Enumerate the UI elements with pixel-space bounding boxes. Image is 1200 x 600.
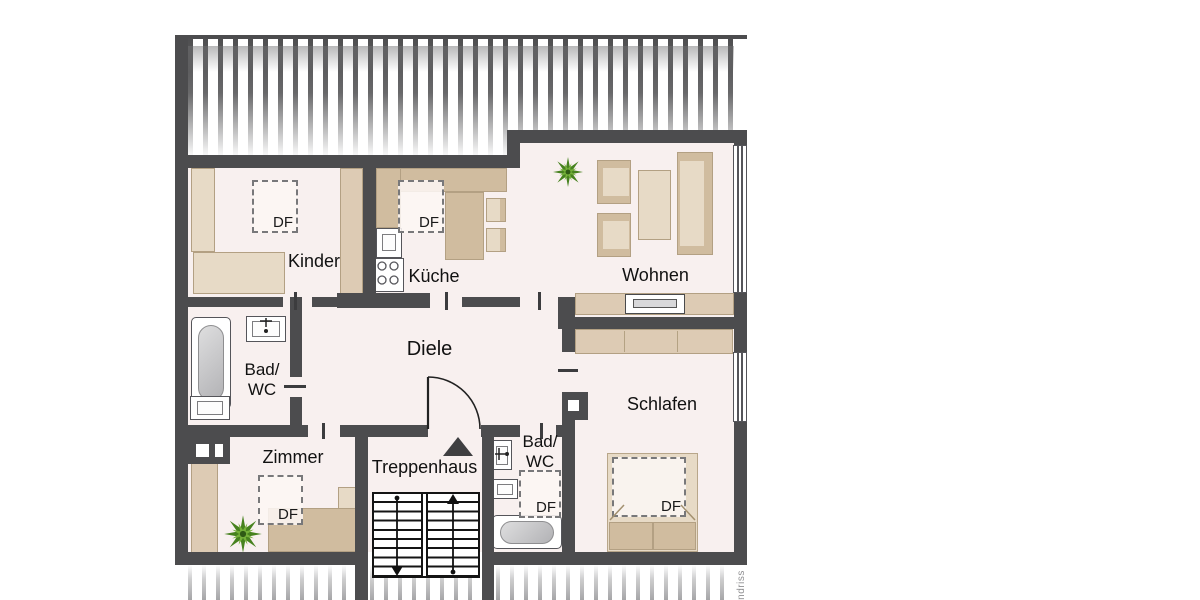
stair-divider	[421, 494, 428, 576]
kitchen-table	[445, 192, 484, 260]
wall	[562, 297, 575, 352]
room-label-bad2-line2: WC	[512, 452, 568, 472]
window-pane-line	[737, 146, 739, 292]
tv	[625, 294, 685, 314]
room-label-kueche: Küche	[391, 266, 477, 287]
wall	[363, 168, 376, 297]
wall	[462, 297, 520, 307]
chimney-block	[562, 392, 588, 420]
window-pane-line	[741, 146, 743, 292]
skylight-kueche: DF	[398, 180, 444, 233]
door-tick	[445, 292, 448, 310]
toilet	[190, 396, 230, 420]
sofa-seat	[680, 161, 704, 246]
bathtub-basin	[198, 325, 224, 401]
washbasin	[492, 440, 512, 470]
room-label-zimmer: Zimmer	[258, 447, 328, 468]
room-label-treppenhaus: Treppenhaus	[362, 457, 487, 478]
toilet-seat	[497, 484, 513, 495]
skylight-zimmer: DF	[258, 475, 303, 525]
stair-run-right	[428, 494, 478, 576]
sofa	[677, 152, 713, 255]
room-label-bad1-line2: WC	[230, 380, 294, 400]
window-pane-line	[741, 353, 743, 421]
window-wohnen	[733, 145, 747, 293]
room-label-bad1-line1: Bad/	[230, 360, 294, 380]
schlafen-wardrobe	[575, 329, 733, 354]
door-tick	[538, 292, 541, 310]
chimney-flue	[196, 444, 209, 457]
washbasin-bowl	[496, 446, 508, 465]
coffee-table	[638, 170, 671, 240]
wall	[507, 130, 747, 143]
kinder-bed-side	[191, 168, 215, 252]
stair-run-left	[374, 494, 421, 576]
chimney-flue	[215, 444, 223, 457]
washbasin	[246, 316, 286, 342]
room-label-kinder: Kinder	[268, 251, 360, 272]
toilet-seat	[197, 401, 223, 415]
kinder-wardrobe	[340, 168, 363, 295]
washbasin-bowl	[252, 321, 280, 337]
wall	[562, 317, 745, 329]
skylight-label: DF	[536, 499, 556, 516]
wall	[482, 552, 747, 565]
tv-screen	[633, 299, 677, 308]
door-tick	[322, 423, 325, 439]
toilet	[492, 479, 518, 499]
window-pane-line	[737, 353, 739, 421]
room-label-schlafen: Schlafen	[612, 394, 712, 415]
skylight-kinder: DF	[252, 180, 298, 233]
skylight-label: DF	[278, 506, 298, 523]
zimmer-wardrobe	[191, 463, 218, 553]
skylight-bad2: DF	[519, 470, 561, 518]
door-tick	[294, 292, 297, 310]
staircase	[372, 492, 480, 578]
chimney-flue	[568, 400, 579, 411]
wardrobe-divider	[677, 331, 678, 352]
wall	[290, 397, 302, 425]
chimney-block	[188, 437, 230, 464]
bed-pillow	[653, 522, 696, 550]
floor-plan: DF DF DF DF DF	[0, 0, 1200, 600]
room-label-wohnen: Wohnen	[608, 265, 703, 286]
wall	[340, 425, 428, 437]
bed-pillow	[609, 522, 653, 550]
skylight-label: DF	[273, 214, 293, 231]
wardrobe-divider	[624, 331, 625, 352]
room-label-bad2-line1: Bad/	[512, 432, 568, 452]
skylight-schlafen: DF	[612, 457, 686, 517]
armchair	[597, 213, 631, 257]
watermark-text: Grundriss	[736, 570, 747, 600]
kitchen-chair	[486, 228, 506, 252]
wall	[175, 425, 308, 437]
door-tick	[558, 369, 578, 372]
skylight-label: DF	[661, 498, 681, 515]
wall	[337, 293, 430, 308]
bathtub	[492, 515, 562, 549]
room-label-diele: Diele	[382, 338, 477, 361]
wall	[175, 155, 520, 168]
armchair-seat	[603, 168, 629, 196]
wall	[188, 297, 283, 307]
skylight-label: DF	[419, 214, 439, 231]
armchair-seat	[603, 221, 629, 249]
bathtub-basin	[500, 521, 554, 544]
kitchen-oven-door	[382, 234, 396, 251]
wall	[175, 552, 368, 565]
kitchen-chair	[486, 198, 506, 222]
window-schlafen	[733, 352, 747, 422]
wall	[175, 35, 188, 565]
armchair	[597, 160, 631, 204]
